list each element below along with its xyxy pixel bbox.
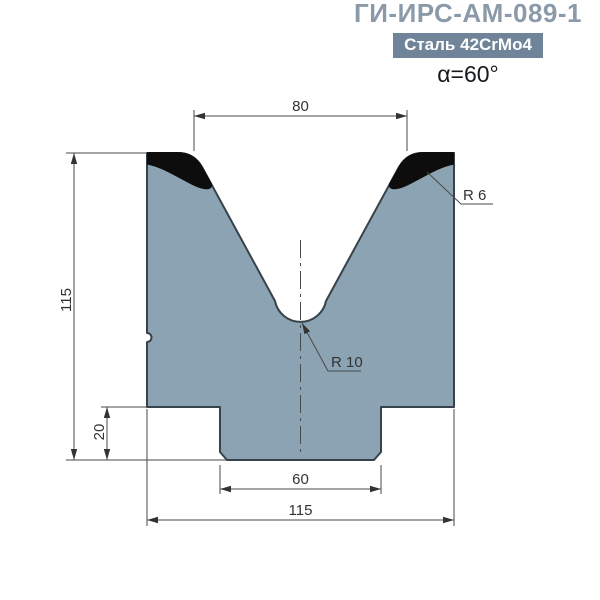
arrow-down [71,449,77,460]
arrow-left [194,113,205,119]
drawing-page: 80 115 20 60 [0,0,600,600]
dim-label: 80 [292,98,309,115]
drawing-title: ГИ-ИРС-АМ-089-1 [354,0,582,27]
arrow-right [396,113,407,119]
arrow-up [104,407,110,418]
arrow-down [104,449,110,460]
angle-label: α=60° [437,62,499,87]
dim-label: 115 [289,502,313,519]
radius-label: R 10 [331,354,363,371]
arrow-up [71,153,77,164]
arrow-right [443,517,454,523]
arrow-left [147,517,158,523]
arrow-right [370,486,381,492]
dim-tang-width: 60 [220,465,381,494]
dim-label: 60 [292,471,309,488]
dim-tang-height: 20 [91,407,146,460]
material-badge: Сталь 42CrMo4 [393,33,543,57]
header: ГИ-ИРС-АМ-089-1 Сталь 42CrMo4 α=60° [318,0,600,87]
radius-label: R 6 [463,187,486,204]
technical-drawing: 80 115 20 60 [0,0,600,600]
arrow-left [220,486,231,492]
dim-label: 20 [91,424,108,441]
dim-label: 115 [58,288,75,312]
dim-groove-opening: 80 [194,98,407,151]
